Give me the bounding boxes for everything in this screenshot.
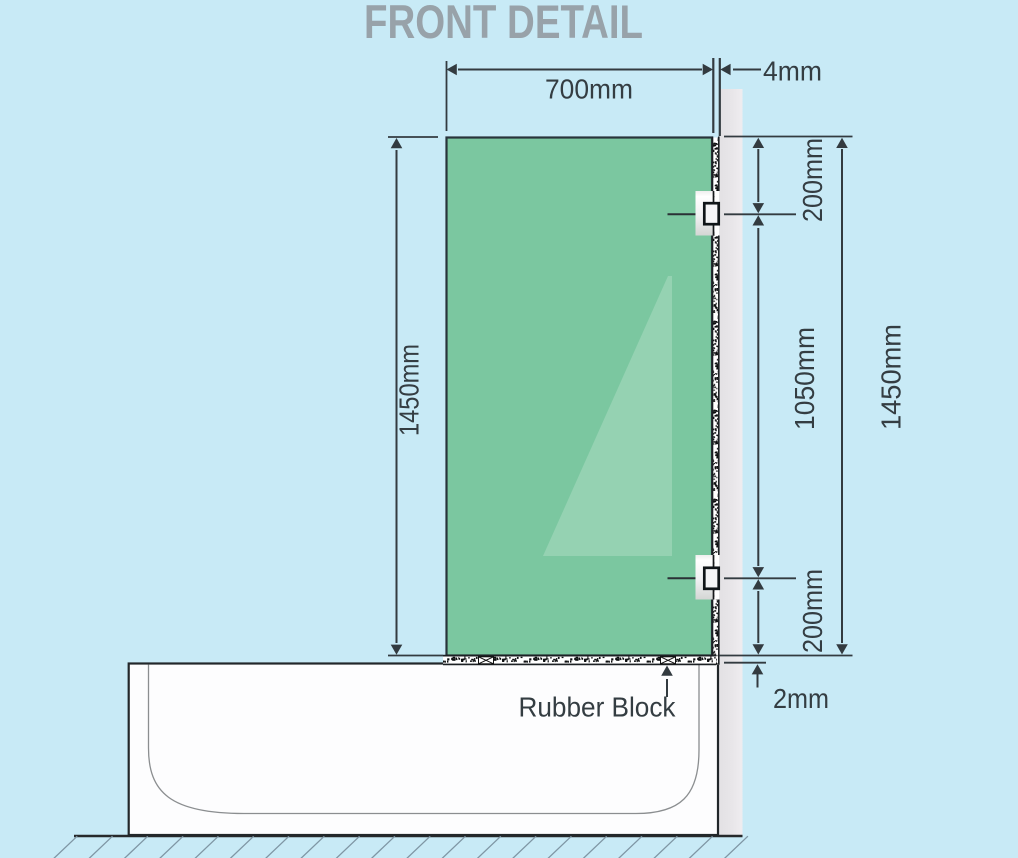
svg-text:700mm: 700mm [545,74,633,105]
svg-text:1450mm: 1450mm [394,344,425,436]
svg-text:Rubber Block: Rubber Block [519,691,677,722]
svg-text:1450mm: 1450mm [876,324,907,430]
svg-text:200mm: 200mm [797,138,828,222]
svg-text:4mm: 4mm [763,55,822,86]
svg-text:FRONT DETAIL: FRONT DETAIL [364,0,643,48]
svg-text:200mm: 200mm [797,569,828,653]
svg-text:2mm: 2mm [773,683,829,714]
svg-text:1050mm: 1050mm [789,327,820,430]
